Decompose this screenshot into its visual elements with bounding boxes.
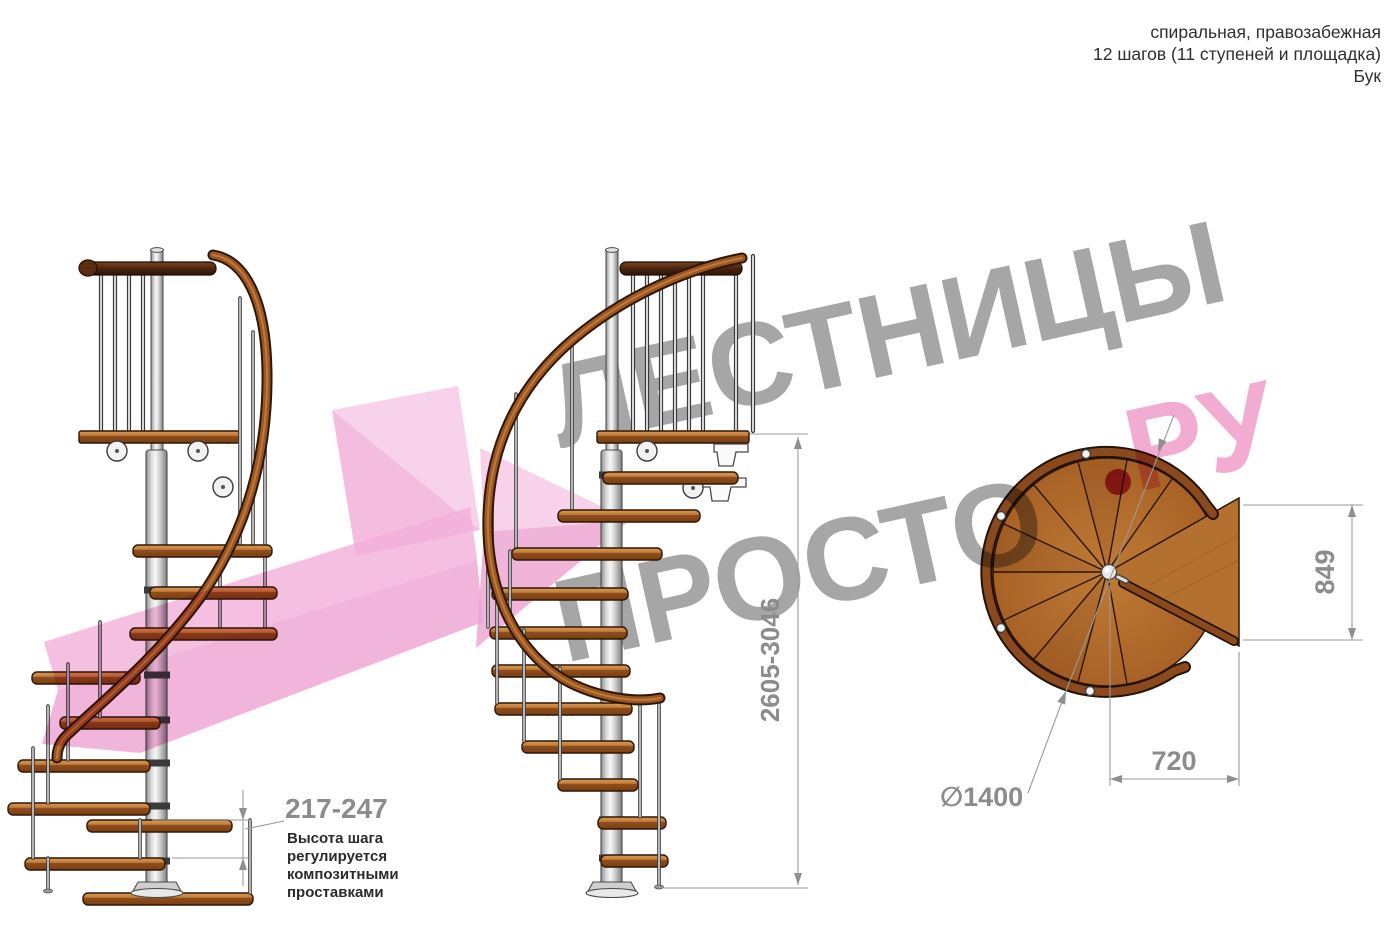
middle-newel-post xyxy=(606,250,618,460)
tread xyxy=(558,510,700,522)
step-height-note-1: Высота шага xyxy=(287,830,384,847)
left-newel-post xyxy=(151,250,163,460)
left-guardrail xyxy=(86,262,216,275)
header-line-3: Бук xyxy=(1353,66,1381,86)
tread xyxy=(512,548,662,560)
total-height-value: 2605-3046 xyxy=(755,598,785,722)
tread xyxy=(522,741,634,753)
step-height-value: 217-247 xyxy=(285,793,388,824)
guardrail-knob xyxy=(79,260,97,276)
tread xyxy=(495,703,632,715)
step-height-note-2: регулируется xyxy=(287,848,387,865)
step-height-note-4: проставками xyxy=(287,884,384,901)
step-height-note-3: композитными xyxy=(287,866,399,883)
tread xyxy=(558,779,638,791)
tread xyxy=(492,588,628,600)
diameter-value: ∅1400 xyxy=(940,782,1023,812)
left-platform xyxy=(79,431,239,443)
watermark-word-3: РУ xyxy=(1113,356,1290,518)
dimension-step-height: 217-247 Высота шага регулируется компози… xyxy=(152,790,399,901)
platform-width-value: 720 xyxy=(1151,746,1196,776)
header-info: спиральная, правозабежная 12 шагов (11 с… xyxy=(1093,22,1381,86)
tread xyxy=(87,820,232,832)
tread xyxy=(8,803,150,815)
middle-platform xyxy=(597,431,749,443)
spiral-staircase-drawing: ЛЕСТНИЦЫ ПРОСТО РУ xyxy=(0,0,1400,930)
watermark-dot xyxy=(1105,469,1131,495)
header-line-2: 12 шагов (11 ступеней и площадка) xyxy=(1093,44,1381,64)
tread xyxy=(133,545,272,557)
drawing-svg: ЛЕСТНИЦЫ ПРОСТО РУ xyxy=(0,0,1400,930)
tread xyxy=(598,817,666,829)
left-staircase-side-view xyxy=(8,248,277,905)
tread xyxy=(25,858,165,870)
header-line-1: спиральная, правозабежная xyxy=(1150,22,1381,42)
wall-bracket xyxy=(714,444,748,466)
tread xyxy=(603,472,738,484)
platform-depth-value: 849 xyxy=(1310,549,1340,594)
dimension-platform-depth: 849 xyxy=(1243,505,1363,640)
tread xyxy=(18,760,150,772)
